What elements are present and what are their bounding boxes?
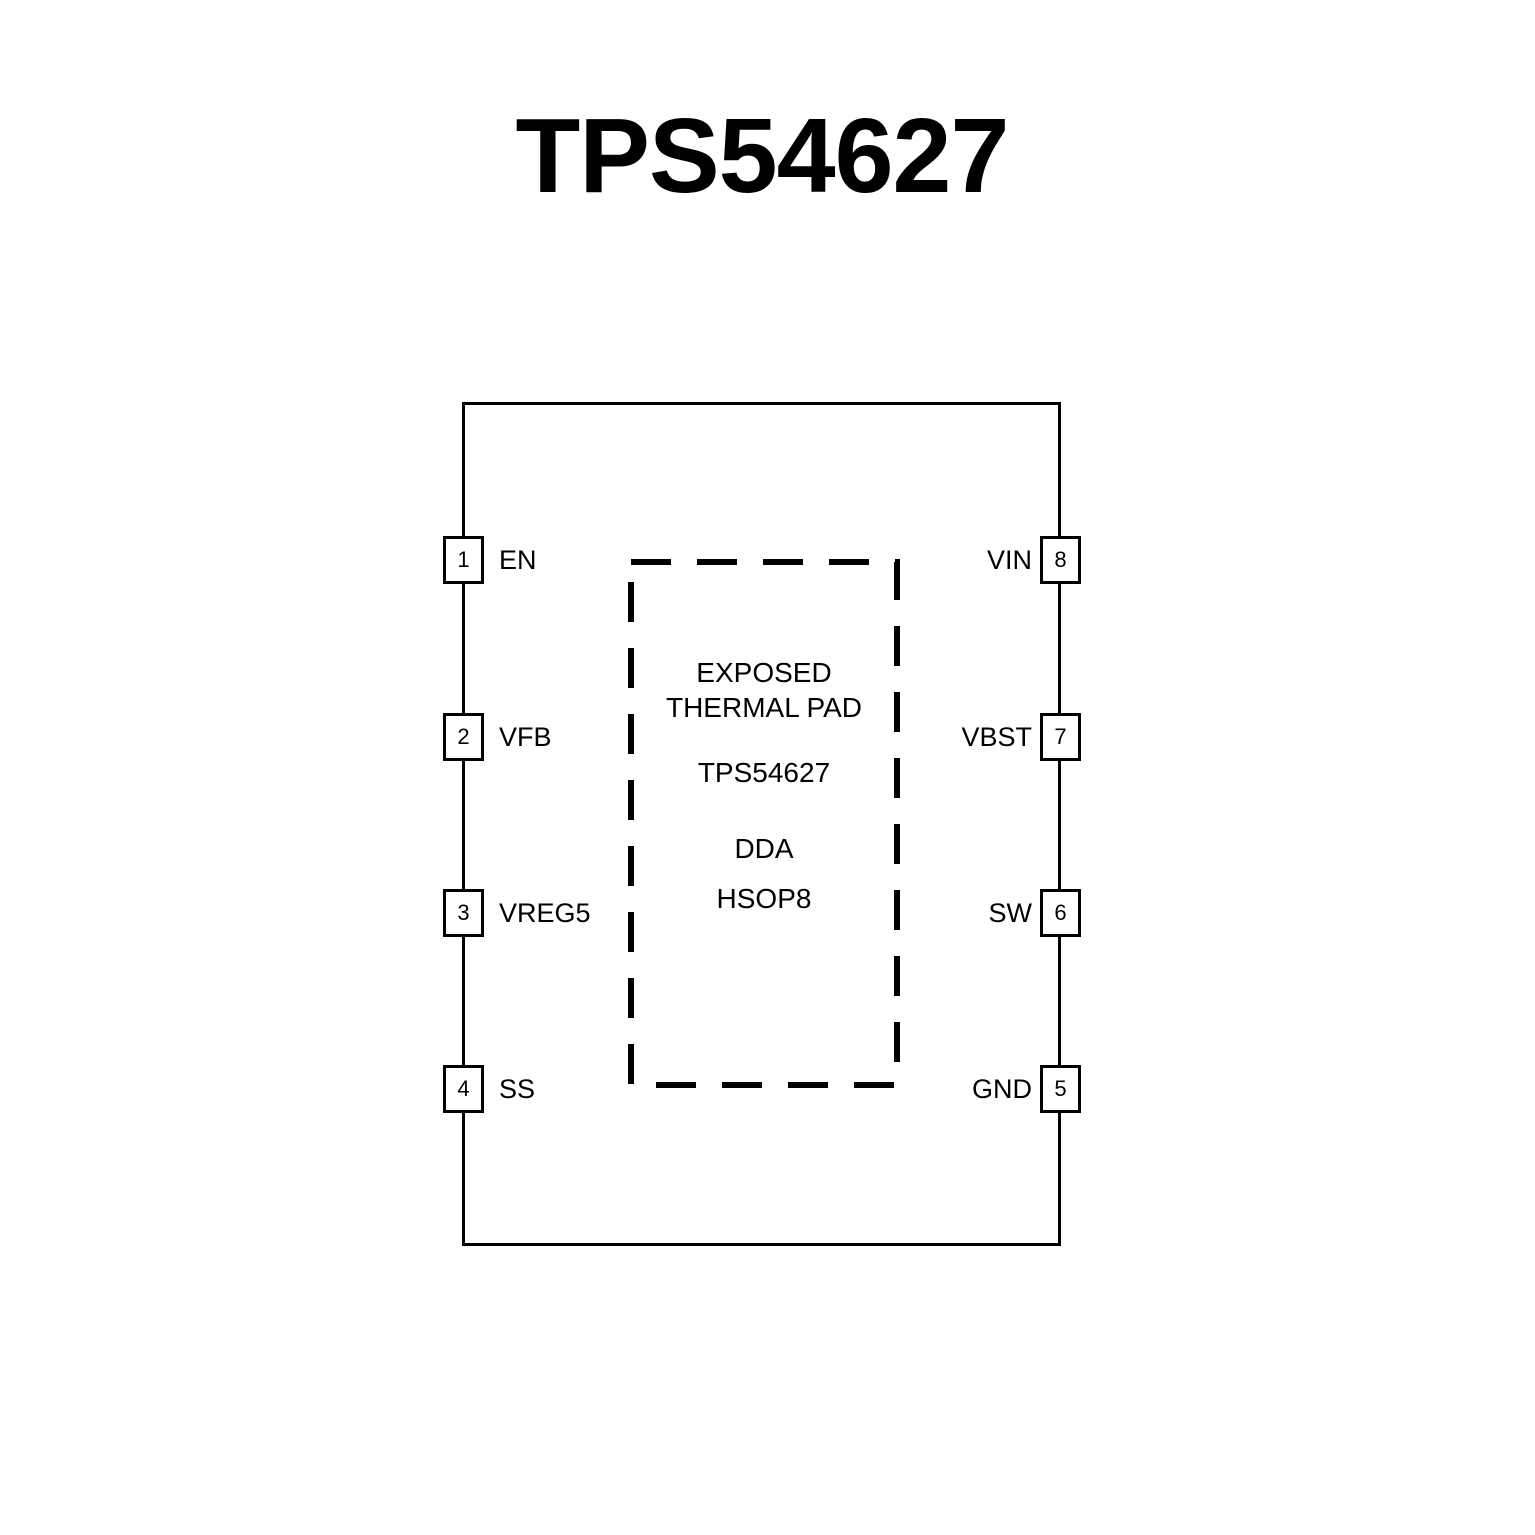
pinout-diagram: TPS54627 EXPOSED THERMAL PAD TPS54627 DD… — [0, 0, 1535, 1535]
pin-7-label: VBST — [834, 713, 1032, 761]
pin-6-label: SW — [834, 889, 1032, 937]
pin-7-box: 7 — [1040, 713, 1081, 761]
pin-3-label: VREG5 — [499, 889, 799, 937]
pin-1-box: 1 — [443, 536, 484, 584]
pin-1-label: EN — [499, 536, 799, 584]
thermal-pad-part-number: TPS54627 — [631, 758, 897, 788]
pin-3-number: 3 — [457, 900, 469, 926]
thermal-pad-dashed-rect — [631, 562, 897, 1085]
pin-3-box: 3 — [443, 889, 484, 937]
pin-2-number: 2 — [457, 724, 469, 750]
pin-6-box: 6 — [1040, 889, 1081, 937]
pin-8-box: 8 — [1040, 536, 1081, 584]
pin-1-number: 1 — [457, 547, 469, 573]
pin-2-box: 2 — [443, 713, 484, 761]
pin-7-number: 7 — [1054, 724, 1066, 750]
pin-4-number: 4 — [457, 1076, 469, 1102]
pin-2-label: VFB — [499, 713, 799, 761]
thermal-pad-label-line1: EXPOSED — [631, 655, 897, 690]
pin-5-number: 5 — [1054, 1076, 1066, 1102]
pin-8-label: VIN — [834, 536, 1032, 584]
pin-6-number: 6 — [1054, 900, 1066, 926]
pin-5-label: GND — [834, 1065, 1032, 1113]
pin-4-label: SS — [499, 1065, 799, 1113]
pin-4-box: 4 — [443, 1065, 484, 1113]
pin-8-number: 8 — [1054, 547, 1066, 573]
thermal-pad-package-code: DDA — [631, 834, 897, 864]
pin-5-box: 5 — [1040, 1065, 1081, 1113]
